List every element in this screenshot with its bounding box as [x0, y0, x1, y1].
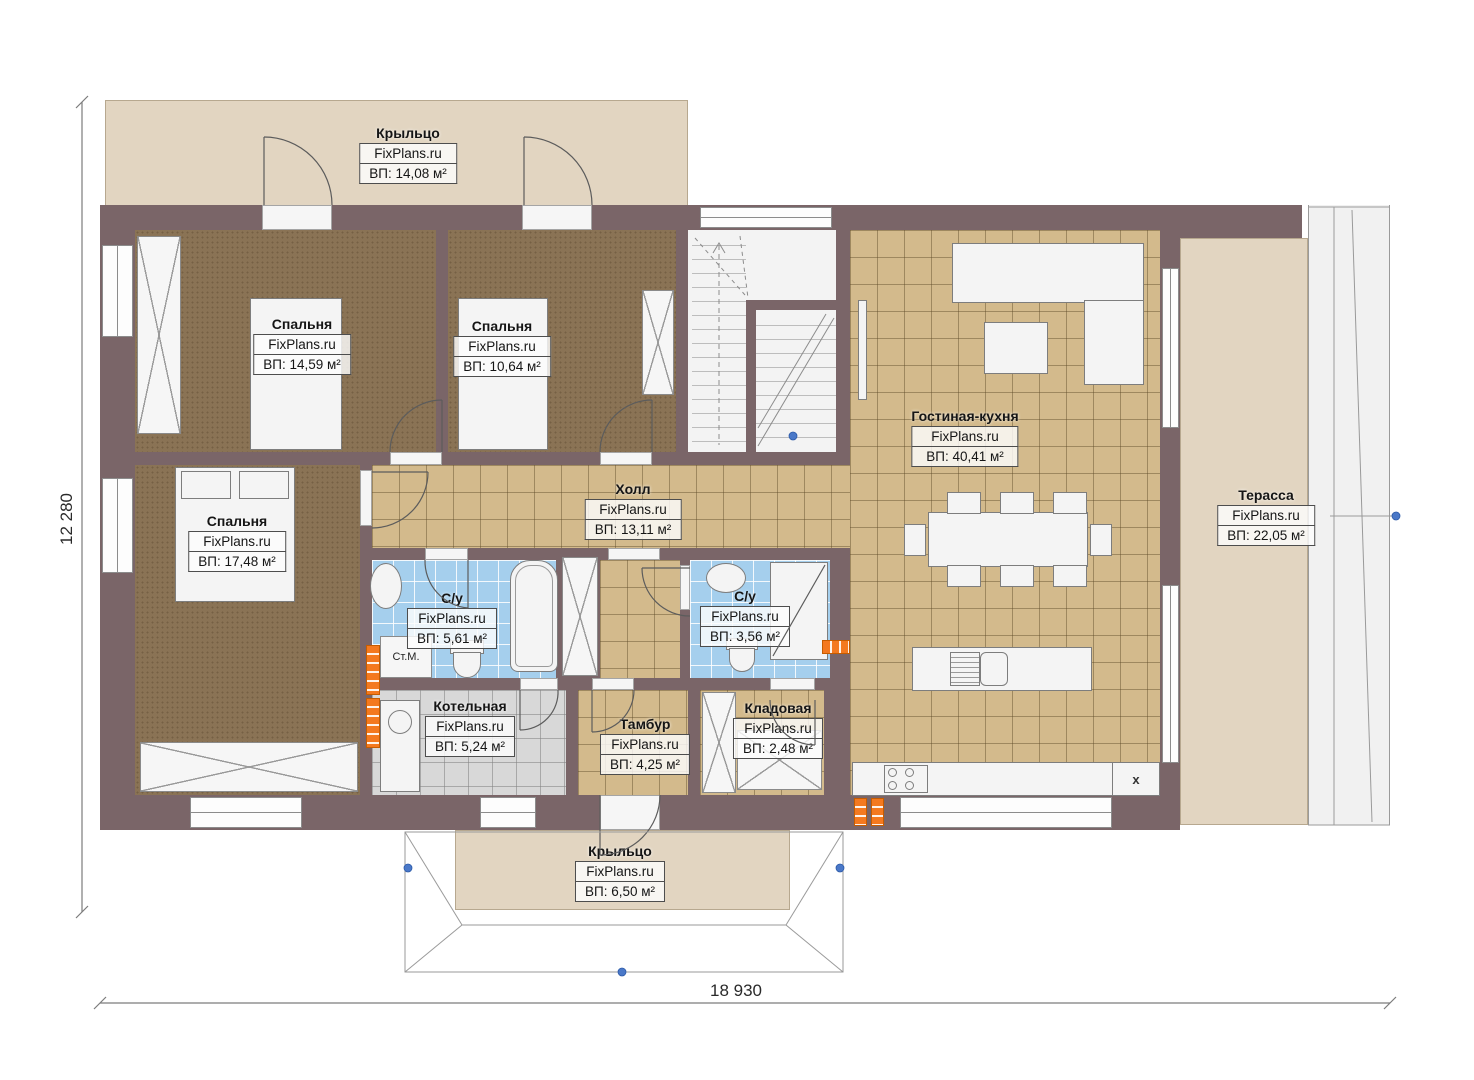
radiator	[854, 798, 867, 826]
area-box: ВП: 22,05 м²	[1217, 526, 1315, 546]
window-left-1	[102, 245, 133, 337]
brand-box: FixPlans.ru	[453, 336, 551, 357]
radiator	[822, 640, 850, 654]
chair	[1053, 565, 1087, 587]
stair-window	[700, 207, 832, 228]
hall-closet	[562, 557, 598, 676]
chair	[1053, 492, 1087, 514]
brand-box: FixPlans.ru	[600, 734, 690, 755]
area-box: ВП: 14,59 м²	[253, 355, 351, 375]
bedroom-3-door-opening	[360, 470, 372, 526]
chair	[1000, 565, 1034, 587]
area-box: ВП: 4,25 м²	[600, 755, 690, 775]
pillow-2	[239, 471, 289, 499]
brand-box: FixPlans.ru	[188, 531, 286, 552]
room-label-storage: Кладовая FixPlans.ru ВП: 2,48 м²	[733, 700, 823, 759]
room-label-living-kitchen: Гостиная-кухня FixPlans.ru ВП: 40,41 м²	[911, 408, 1018, 467]
room-label-bathroom-1: С/у FixPlans.ru ВП: 5,61 м²	[407, 590, 497, 649]
radiator	[871, 798, 884, 826]
burner	[905, 781, 914, 790]
bedroom-1-door-opening	[390, 452, 442, 465]
vestibule-closet	[702, 692, 736, 793]
burner	[905, 768, 914, 777]
area-box: ВП: 5,61 м²	[407, 629, 497, 649]
room-label-porch-bottom: Крыльцо FixPlans.ru ВП: 6,50 м²	[575, 843, 665, 902]
area-box: ВП: 40,41 м²	[911, 447, 1018, 467]
sink-bathroom-1	[370, 563, 402, 609]
area-box: ВП: 17,48 м²	[188, 552, 286, 572]
wardrobe-bedroom-1	[137, 236, 181, 434]
tv-unit	[858, 300, 867, 400]
chair	[947, 492, 981, 514]
chair	[1090, 524, 1112, 556]
storage-door-opening	[770, 678, 815, 690]
dimension-width-label: 18 930	[710, 981, 762, 1000]
corridor-floor	[600, 560, 680, 678]
area-box: ВП: 14,08 м²	[359, 164, 457, 184]
floor-plan-canvas: x Ст.М. Крыльцо FixPlans.ru ВП: 14,08 м²…	[0, 0, 1474, 1080]
terrace-glass-door-2	[1162, 585, 1179, 763]
terrace-glass-door-1	[1162, 268, 1179, 428]
bedroom-2-door-opening	[600, 452, 652, 465]
brand-box: FixPlans.ru	[359, 143, 457, 164]
room-label-porch-top: Крыльцо FixPlans.ru ВП: 14,08 м²	[359, 125, 457, 184]
brand-box: FixPlans.ru	[733, 718, 823, 739]
coffee-table	[984, 322, 1048, 374]
room-label-bedroom-2: Спальня FixPlans.ru ВП: 10,64 м²	[453, 318, 551, 377]
wardrobe-bedroom-2	[642, 290, 674, 395]
brand-box: FixPlans.ru	[911, 426, 1018, 447]
bathroom-2-door-opening	[680, 565, 690, 610]
bathtub-inner	[515, 565, 553, 667]
room-label-bedroom-1: Спальня FixPlans.ru ВП: 14,59 м²	[253, 316, 351, 375]
room-label-bedroom-3: Спальня FixPlans.ru ВП: 17,48 м²	[188, 513, 286, 572]
area-box: ВП: 3,56 м²	[700, 627, 790, 647]
area-box: ВП: 10,64 м²	[453, 357, 551, 377]
brand-box: FixPlans.ru	[407, 608, 497, 629]
room-label-terrace: Терасса FixPlans.ru ВП: 22,05 м²	[1217, 487, 1315, 546]
vestibule-entry-opening	[600, 795, 660, 830]
room-label-boiler-room: Котельная FixPlans.ru ВП: 5,24 м²	[425, 698, 515, 757]
brand-box: FixPlans.ru	[585, 499, 682, 520]
chair	[947, 565, 981, 587]
boiler-door-opening	[520, 678, 558, 690]
burner	[888, 781, 897, 790]
entry-door-opening-2	[522, 205, 592, 230]
boiler-circle	[388, 710, 412, 734]
terrace-roof-edge	[1308, 205, 1390, 825]
kitchen-window	[900, 797, 1112, 828]
fridge-marker: x	[1112, 762, 1160, 796]
room-label-bathroom-2: С/у FixPlans.ru ВП: 3,56 м²	[700, 588, 790, 647]
radiator	[366, 645, 380, 695]
island-sink-bowl	[980, 652, 1008, 686]
terrace-top-wall	[1180, 205, 1302, 238]
vestibule-door-opening	[592, 678, 634, 690]
area-box: ВП: 6,50 м²	[575, 882, 665, 902]
brand-box: FixPlans.ru	[253, 334, 351, 355]
bathroom-1-door-opening	[425, 548, 468, 560]
stair-inner-wall-v	[746, 300, 756, 452]
stair-inner-wall-h	[746, 300, 836, 310]
area-box: ВП: 2,48 м²	[733, 739, 823, 759]
room-label-vestibule: Тамбур FixPlans.ru ВП: 4,25 м²	[600, 716, 690, 775]
wardrobe-bedroom-3	[140, 742, 358, 792]
pillow-1	[181, 471, 231, 499]
dimension-height-label: 12 280	[57, 493, 76, 545]
stair-flight-right	[756, 312, 836, 450]
area-box: ВП: 13,11 м²	[585, 520, 682, 540]
island-sink-drainboard	[950, 652, 980, 686]
area-box: ВП: 5,24 м²	[425, 737, 515, 757]
chair	[904, 524, 926, 556]
chair	[1000, 492, 1034, 514]
dining-table	[928, 512, 1088, 567]
corridor-opening	[608, 548, 660, 560]
brand-box: FixPlans.ru	[575, 861, 665, 882]
brand-box: FixPlans.ru	[1217, 505, 1315, 526]
room-label-hall: Холл FixPlans.ru ВП: 13,11 м²	[585, 481, 682, 540]
entry-door-opening-1	[262, 205, 332, 230]
burner	[888, 768, 897, 777]
brand-box: FixPlans.ru	[700, 606, 790, 627]
stair-flight-left	[692, 232, 746, 450]
window-bottom-1	[190, 797, 302, 828]
brand-box: FixPlans.ru	[425, 716, 515, 737]
window-bottom-2	[480, 797, 536, 828]
sofa-chaise	[1084, 300, 1144, 385]
window-left-2	[102, 478, 133, 573]
sofa-horizontal	[952, 243, 1144, 303]
radiator	[366, 698, 380, 748]
